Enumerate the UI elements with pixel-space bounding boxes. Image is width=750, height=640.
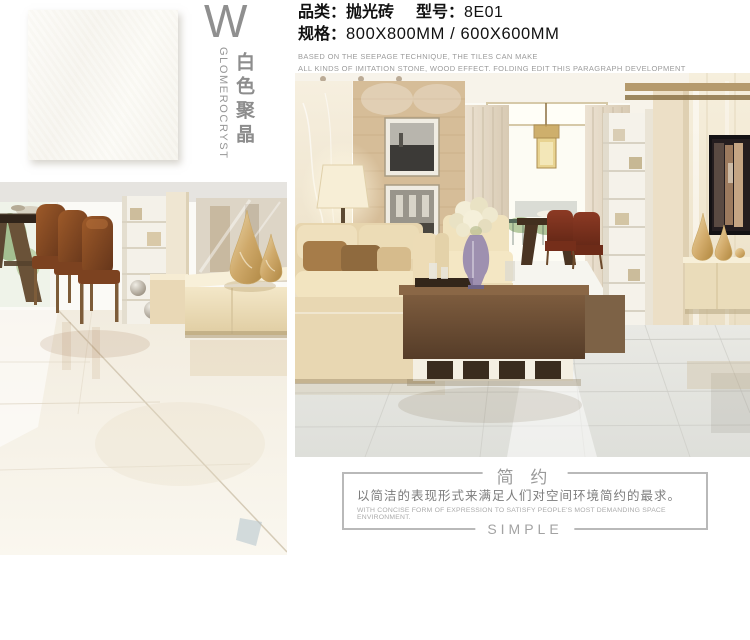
spec-label: 规格： xyxy=(298,26,346,43)
model-label: 型号： xyxy=(416,4,464,21)
english-desc-line-1: BASED ON THE SEEPAGE TECHNIQUE, THE TILE… xyxy=(298,52,686,61)
concept-title-chinese: 简 约 xyxy=(483,463,568,488)
english-desc-line-2: ALL KINDS OF IMITATION STONE, WOOD EFFEC… xyxy=(298,64,686,73)
spec-value: 800X800MM / 600X600MM xyxy=(346,25,559,43)
concept-desc-english: WITH CONCISE FORM OF EXPRESSION TO SATIS… xyxy=(357,507,706,521)
concept-title-english: SIMPLE xyxy=(475,521,574,537)
tile-swatch-image xyxy=(28,10,178,160)
living-room-illustration xyxy=(295,73,750,457)
model-value: 8E01 xyxy=(464,4,503,21)
size-spec-line: 规格：800X800MM / 600X600MM xyxy=(298,24,686,46)
framed-picture-top xyxy=(385,118,439,176)
living-room-photo xyxy=(295,73,750,457)
dining-room-photo xyxy=(0,182,287,555)
category-value: 抛光砖 xyxy=(346,4,394,21)
concept-box: 简 约 以简洁的表现形式来满足人们对空间环境简约的最求。 WITH CONCIS… xyxy=(342,472,708,530)
brand-name-english: GLOMEROCRYST xyxy=(217,47,229,160)
brand-letter: W xyxy=(204,0,247,44)
tile-product-detail-page: W GLOMEROCRYST 白色聚晶 品类：抛光砖型号：8E01 规格：800… xyxy=(0,0,750,640)
category-model-line: 品类：抛光砖型号：8E01 xyxy=(298,3,686,23)
brand-name-chinese: 白色聚晶 xyxy=(230,52,257,148)
product-spec-block: 品类：抛光砖型号：8E01 规格：800X800MM / 600X600MM B… xyxy=(298,3,686,73)
tv-screen xyxy=(709,135,750,235)
dining-room-illustration xyxy=(0,182,287,555)
category-label: 品类： xyxy=(298,4,346,21)
